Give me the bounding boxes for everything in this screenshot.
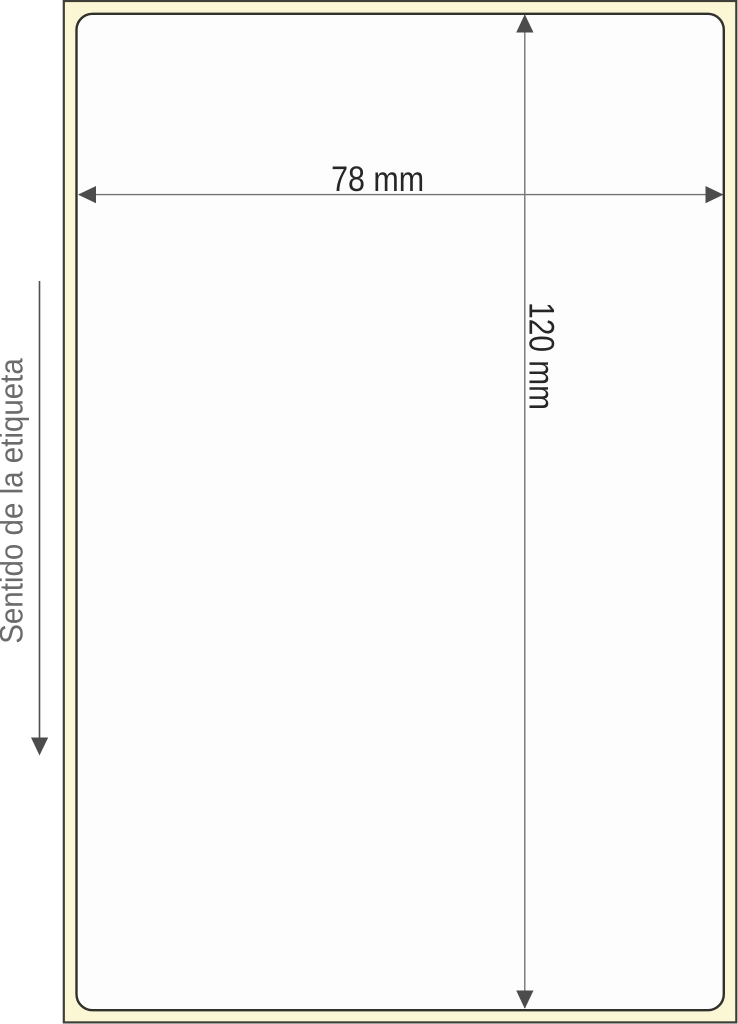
- svg-text:78 mm: 78 mm: [331, 159, 424, 198]
- svg-text:120 mm: 120 mm: [522, 302, 562, 410]
- svg-text:Sentido de la etiqueta: Sentido de la etiqueta: [0, 358, 30, 644]
